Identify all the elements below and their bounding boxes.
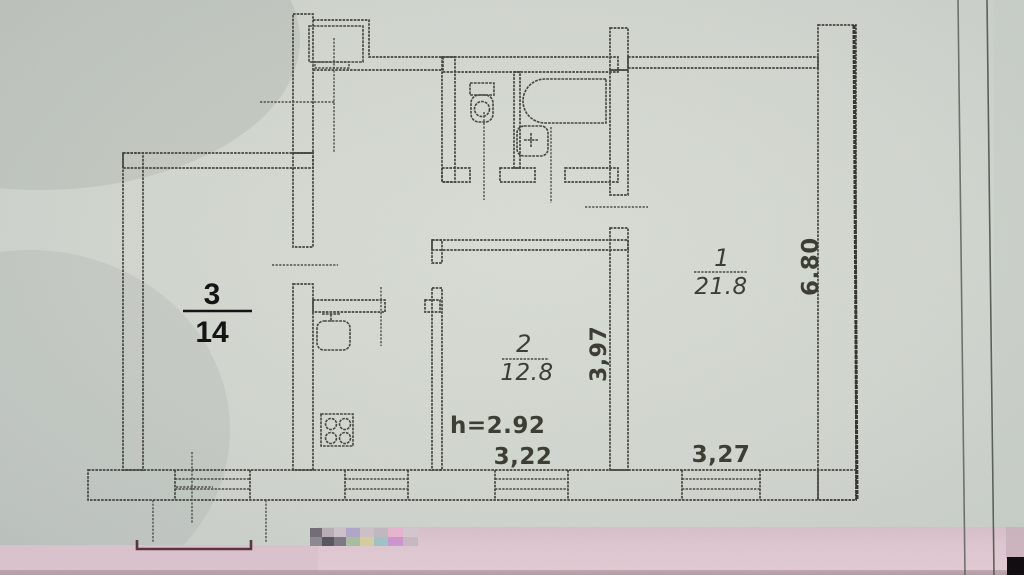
photo-grain-overlay (0, 0, 1024, 575)
scanned-floor-plan-photo: 1 21.8 2 12.8 6.80 3,97 h=2.92 3,22 3,27… (0, 0, 1024, 575)
floor-plan-canvas: 1 21.8 2 12.8 6.80 3,97 h=2.92 3,22 3,27… (0, 0, 1024, 575)
